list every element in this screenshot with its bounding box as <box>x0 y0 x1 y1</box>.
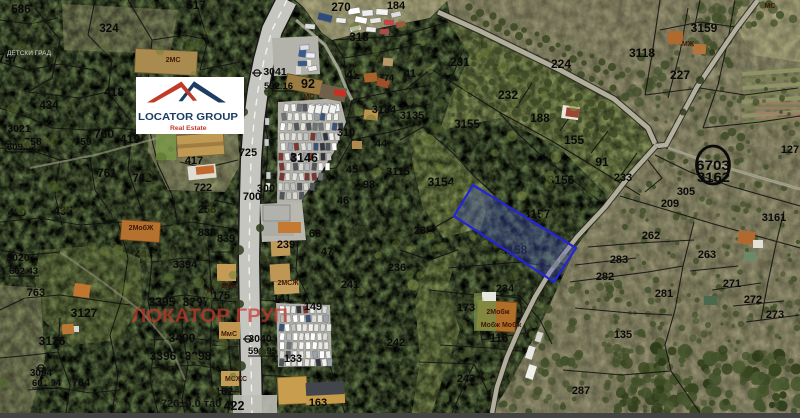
svg-text:262: 262 <box>642 230 660 242</box>
svg-text:133: 133 <box>284 353 302 365</box>
svg-text:116: 116 <box>490 333 509 345</box>
svg-text:209: 209 <box>661 198 679 210</box>
svg-text:318: 318 <box>349 32 369 44</box>
svg-text:272: 272 <box>744 294 762 306</box>
svg-text:760: 760 <box>94 127 114 141</box>
svg-text:44: 44 <box>375 138 388 150</box>
svg-text:92: 92 <box>301 77 315 91</box>
svg-text:Real Estate: Real Estate <box>170 125 207 132</box>
svg-text:586: 586 <box>11 4 30 16</box>
svg-text:419: 419 <box>120 132 140 146</box>
svg-text:3020: 3020 <box>6 252 30 264</box>
svg-text:300: 300 <box>257 183 275 195</box>
svg-text:149: 149 <box>304 301 322 313</box>
svg-text:231: 231 <box>450 57 470 69</box>
svg-text:184: 184 <box>387 0 406 12</box>
svg-text:Мобж Мобж: Мобж Мобж <box>481 321 523 329</box>
svg-text:173: 173 <box>457 302 475 314</box>
svg-text:3041: 3041 <box>263 66 287 78</box>
svg-text:3400: 3400 <box>169 331 196 345</box>
svg-text:3159: 3159 <box>691 21 718 35</box>
svg-text:91: 91 <box>595 155 609 169</box>
svg-text:243: 243 <box>457 373 475 385</box>
svg-text:ЛОКАТОР ГРУП: ЛОКАТОР ГРУП <box>132 305 288 327</box>
svg-text:3398: 3398 <box>185 349 212 363</box>
svg-text:3127: 3127 <box>71 306 98 320</box>
svg-text:LOCATOR GROUP: LOCATOR GROUP <box>138 111 238 123</box>
svg-text:761: 761 <box>97 168 117 180</box>
svg-text:763: 763 <box>27 287 45 299</box>
svg-text:3396: 3396 <box>150 349 177 363</box>
svg-text:135: 135 <box>614 329 632 341</box>
svg-text:2МобЖ: 2МобЖ <box>129 224 154 232</box>
svg-text:287: 287 <box>572 385 590 397</box>
svg-text:74: 74 <box>384 73 394 83</box>
svg-text:41: 41 <box>404 68 416 80</box>
svg-text:3146: 3146 <box>290 151 318 165</box>
svg-text:127: 127 <box>781 144 799 156</box>
svg-text:3118: 3118 <box>629 46 655 60</box>
svg-text:281: 281 <box>655 288 673 300</box>
svg-text:3162: 3162 <box>697 169 730 185</box>
svg-text:283: 283 <box>610 254 628 266</box>
svg-text:45: 45 <box>346 164 358 176</box>
svg-text:764: 764 <box>72 377 91 389</box>
svg-text:188: 188 <box>530 113 550 125</box>
svg-text:236: 236 <box>388 262 406 274</box>
svg-text:617: 617 <box>186 0 205 12</box>
svg-text:2МС: 2МС <box>222 283 237 290</box>
svg-text:273: 273 <box>766 309 784 321</box>
svg-text:3126: 3126 <box>39 334 66 348</box>
svg-text:47: 47 <box>321 246 333 258</box>
svg-text:2МС: 2МС <box>166 57 181 64</box>
svg-text:720±0.0 та0: 720±0.0 та0 <box>161 398 221 410</box>
svg-text:263: 263 <box>698 249 716 261</box>
svg-text:3155: 3155 <box>454 119 480 131</box>
svg-text:759: 759 <box>74 136 92 148</box>
svg-text:3021: 3021 <box>7 123 31 135</box>
svg-text:ДЕТСКИ ГРАД: ДЕТСКИ ГРАД <box>7 50 52 57</box>
svg-text:2Мобж: 2Мобж <box>486 308 510 316</box>
svg-text:839: 839 <box>217 233 235 245</box>
svg-text:МС: МС <box>765 3 776 10</box>
svg-text:175: 175 <box>212 290 230 302</box>
svg-text:418: 418 <box>104 85 124 99</box>
svg-text:68: 68 <box>309 228 321 240</box>
svg-text:422: 422 <box>224 399 245 413</box>
svg-text:239: 239 <box>277 239 295 251</box>
svg-text:324: 324 <box>99 23 119 35</box>
svg-text:46: 46 <box>337 195 349 207</box>
svg-text:2МСЖ: 2МСЖ <box>277 280 299 287</box>
svg-text:233: 233 <box>614 172 632 184</box>
svg-text:3161: 3161 <box>762 212 786 224</box>
svg-text:224: 224 <box>551 57 571 71</box>
svg-text:242: 242 <box>387 337 405 349</box>
svg-text:3135: 3135 <box>400 110 424 122</box>
svg-text:3394: 3394 <box>173 259 198 271</box>
svg-text:310: 310 <box>337 127 355 139</box>
svg-text:282: 282 <box>596 271 614 283</box>
svg-text:МО: МО <box>303 94 315 101</box>
svg-text:234: 234 <box>496 283 515 295</box>
svg-text:155: 155 <box>564 133 584 147</box>
svg-text:98: 98 <box>363 179 375 191</box>
svg-text:3115: 3115 <box>386 166 410 178</box>
svg-text:241: 241 <box>341 279 359 291</box>
svg-text:434: 434 <box>39 100 59 112</box>
svg-text:838: 838 <box>198 227 216 239</box>
svg-text:305: 305 <box>677 186 695 198</box>
svg-text:МЖ: МЖ <box>682 41 695 48</box>
svg-text:271: 271 <box>723 278 741 290</box>
svg-text:725: 725 <box>239 147 257 159</box>
svg-text:270: 270 <box>331 2 350 14</box>
svg-text:МмС: МмС <box>221 331 237 338</box>
svg-text:227: 227 <box>670 68 690 82</box>
svg-text:141: 141 <box>273 293 291 305</box>
svg-text:163: 163 <box>309 397 327 409</box>
svg-text:3184: 3184 <box>372 104 397 116</box>
svg-text:417: 417 <box>185 155 203 167</box>
svg-text:602.43: 602.43 <box>9 266 38 277</box>
